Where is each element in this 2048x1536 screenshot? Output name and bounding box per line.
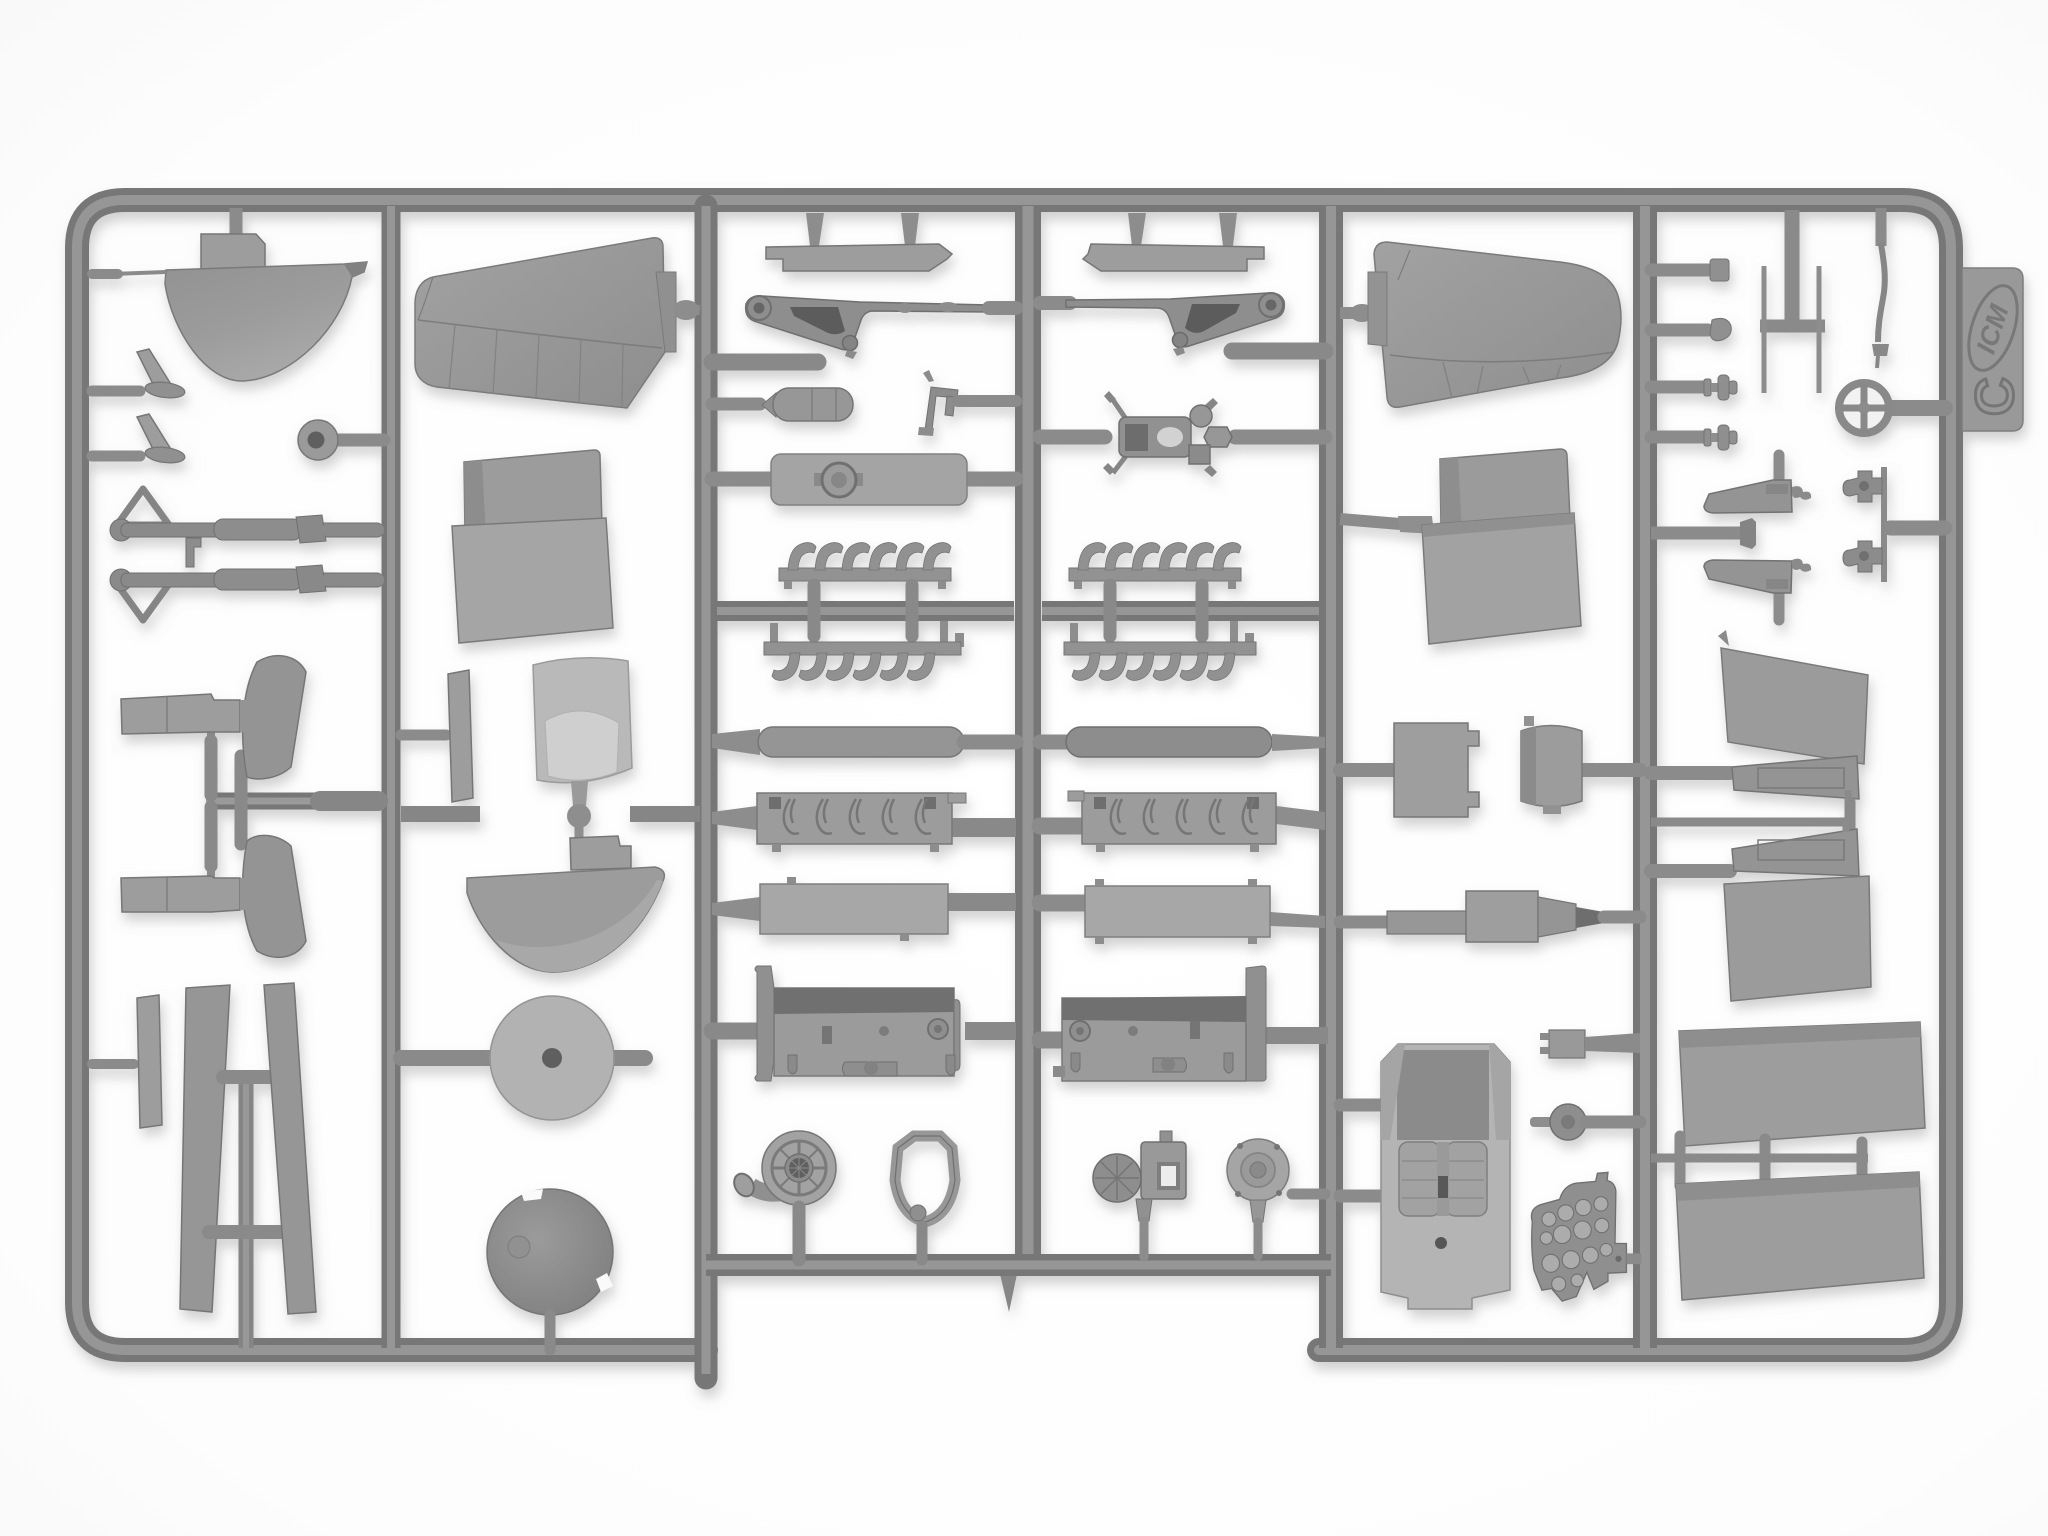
svg-text:C: C (1965, 377, 2025, 416)
